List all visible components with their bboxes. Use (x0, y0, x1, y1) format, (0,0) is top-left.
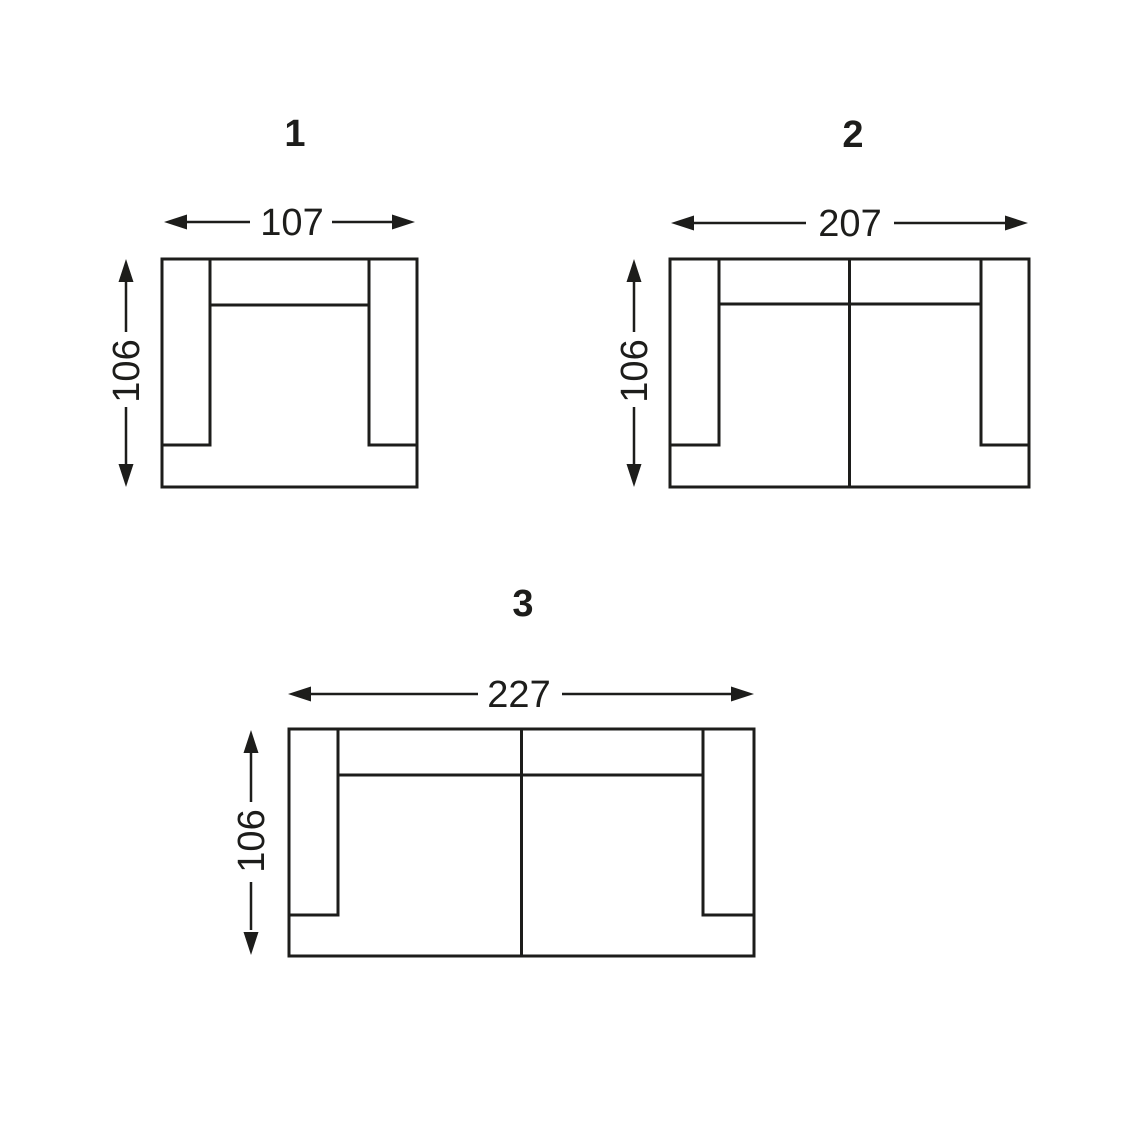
sofa-diagram-2: 2 207 106 (614, 114, 1029, 487)
diagram-number: 3 (512, 583, 533, 625)
right-armrest (703, 729, 754, 915)
left-armrest (670, 259, 719, 445)
diagram-canvas: 1 107 106 (0, 0, 1141, 1141)
furniture-dimension-drawing: 1 107 106 (0, 0, 1141, 1141)
width-value: 227 (487, 674, 550, 716)
left-armrest (289, 729, 338, 915)
width-dimension: 227 (288, 674, 754, 716)
arrowhead-right-icon (392, 215, 415, 230)
arrowhead-left-icon (671, 216, 694, 231)
sofa-outline (289, 729, 754, 956)
depth-dimension: 106 (231, 730, 273, 955)
arrowhead-left-icon (164, 215, 187, 230)
arrowhead-down-icon (119, 464, 134, 487)
diagram-number: 2 (842, 114, 863, 156)
right-armrest (981, 259, 1029, 445)
sofa-diagram-3: 3 227 106 (231, 583, 754, 956)
arrowhead-down-icon (627, 464, 642, 487)
width-value: 107 (260, 202, 323, 244)
sofa-outline (670, 259, 1029, 487)
width-value: 207 (818, 203, 881, 245)
width-dimension: 107 (164, 202, 415, 244)
diagram-number: 1 (284, 113, 305, 155)
arrowhead-right-icon (1005, 216, 1028, 231)
right-armrest (369, 259, 417, 445)
sofa-diagram-1: 1 107 106 (106, 113, 417, 487)
sofa-outline (162, 259, 417, 487)
arrowhead-up-icon (119, 259, 134, 282)
left-armrest (162, 259, 210, 445)
arrowhead-up-icon (244, 730, 259, 753)
arrowhead-down-icon (244, 932, 259, 955)
depth-value: 106 (614, 339, 656, 402)
arrowhead-up-icon (627, 259, 642, 282)
depth-dimension: 106 (614, 259, 656, 487)
depth-value: 106 (231, 809, 273, 872)
depth-value: 106 (106, 339, 148, 402)
width-dimension: 207 (671, 203, 1028, 245)
sofa-body (162, 259, 417, 487)
depth-dimension: 106 (106, 259, 148, 487)
